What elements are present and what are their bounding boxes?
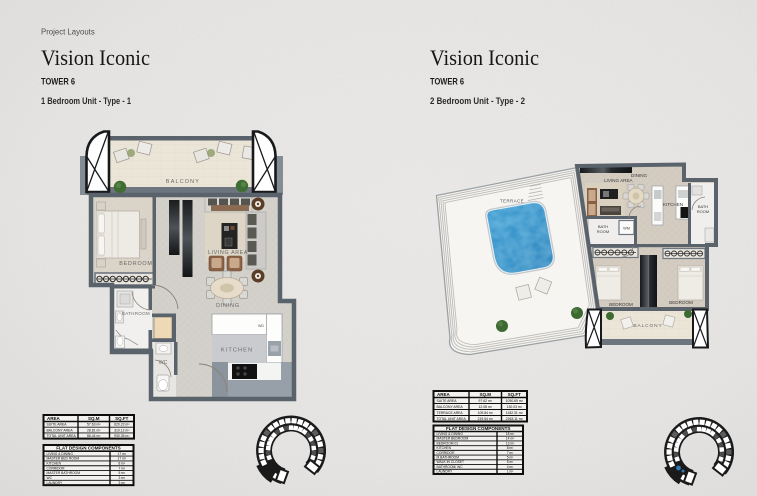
svg-text:TERRACE AREA: TERRACE AREA: [437, 411, 464, 415]
svg-text:BALCONY AREA: BALCONY AREA: [437, 405, 464, 409]
svg-text:SQ.FT: SQ.FT: [115, 416, 129, 421]
svg-text:3 m²: 3 m²: [118, 481, 125, 485]
svg-text:FLAT DESIGN COMPONENTS: FLAT DESIGN COMPONENTS: [446, 426, 510, 431]
svg-text:310.12 m²: 310.12 m²: [114, 428, 130, 432]
svg-text:7 m²: 7 m²: [507, 451, 514, 455]
svg-text:SQ.M: SQ.M: [479, 392, 491, 397]
svg-text:SQ.M: SQ.M: [88, 416, 100, 421]
svg-text:MASTER BATHROOM: MASTER BATHROOM: [47, 471, 81, 475]
svg-text:LIVING & DINING: LIVING & DINING: [47, 452, 74, 456]
svg-text:SQ.FT: SQ.FT: [508, 392, 522, 397]
svg-text:WM: WM: [623, 227, 630, 231]
svg-text:1 Bedroom Unit - Type - 1: 1 Bedroom Unit - Type - 1: [41, 96, 132, 107]
svg-text:14 m²: 14 m²: [506, 437, 515, 441]
svg-text:8 m²: 8 m²: [118, 461, 125, 465]
svg-text:KITCHEN: KITCHEN: [47, 461, 62, 465]
svg-text:4 m²: 4 m²: [507, 465, 514, 469]
svg-text:DINING: DINING: [631, 173, 648, 178]
svg-text:BALCONY AREA: BALCONY AREA: [47, 428, 74, 432]
svg-text:97.62 m²: 97.62 m²: [479, 399, 493, 403]
svg-text:18 m²: 18 m²: [506, 432, 515, 436]
svg-text:28.81 m²: 28.81 m²: [87, 428, 101, 432]
svg-text:Vision Iconic: Vision Iconic: [430, 45, 539, 70]
svg-text:219.54 m²: 219.54 m²: [478, 417, 494, 421]
svg-text:DINING: DINING: [216, 303, 240, 309]
svg-text:12.08 m²: 12.08 m²: [479, 405, 493, 409]
svg-text:CORRIDOR: CORRIDOR: [47, 466, 66, 470]
svg-text:17 m²: 17 m²: [118, 457, 127, 461]
svg-text:8 m²: 8 m²: [507, 446, 514, 450]
svg-text:130.03 m²: 130.03 m²: [507, 405, 523, 409]
svg-text:5 m²: 5 m²: [118, 471, 125, 475]
svg-text:WD: WD: [258, 324, 264, 328]
svg-text:13 m²: 13 m²: [506, 441, 515, 445]
svg-text:LAUNDRY: LAUNDRY: [437, 470, 453, 474]
svg-text:BEDROOM: BEDROOM: [119, 261, 152, 267]
svg-text:Vision Iconic: Vision Iconic: [41, 45, 150, 70]
svg-text:109.84 m²: 109.84 m²: [478, 411, 494, 415]
svg-text:WALK IN CLOSET: WALK IN CLOSET: [437, 460, 465, 464]
svg-text:TOWER 6: TOWER 6: [430, 77, 464, 88]
svg-text:KITCHEN: KITCHEN: [663, 202, 683, 207]
svg-text:BALCONY: BALCONY: [166, 179, 200, 185]
svg-text:BALCONY: BALCONY: [633, 323, 662, 329]
svg-text:Project Layouts: Project Layouts: [41, 28, 95, 37]
svg-text:CORRIDOR: CORRIDOR: [437, 451, 456, 455]
svg-text:ROOM: ROOM: [597, 229, 609, 234]
svg-text:AREA: AREA: [437, 392, 451, 397]
svg-text:WC: WC: [47, 476, 53, 480]
svg-text:1182.31 m²: 1182.31 m²: [506, 411, 524, 415]
svg-text:SUITE AREA: SUITE AREA: [47, 423, 68, 427]
svg-text:620.22 m²: 620.22 m²: [114, 423, 130, 427]
svg-text:BATHROOM/ WC: BATHROOM/ WC: [437, 465, 464, 469]
svg-text:MASTER BED ROOM: MASTER BED ROOM: [47, 457, 80, 461]
svg-text:TOTAL UNIT AREA: TOTAL UNIT AREA: [437, 417, 467, 421]
svg-text:BATHROOM: BATHROOM: [122, 311, 150, 316]
svg-text:BEDROOM 01: BEDROOM 01: [437, 441, 459, 445]
svg-text:LIVING AREA: LIVING AREA: [604, 178, 634, 183]
svg-text:LIVING AREA: LIVING AREA: [208, 250, 248, 256]
svg-text:BEDROOM: BEDROOM: [669, 300, 693, 305]
svg-text:2 Bedroom Unit - Type - 2: 2 Bedroom Unit - Type - 2: [430, 96, 525, 107]
svg-text:FLAT DESIGN COMPONENTS: FLAT DESIGN COMPONENTS: [56, 446, 120, 451]
svg-text:1050.69 m²: 1050.69 m²: [506, 399, 524, 403]
svg-text:5 m²: 5 m²: [507, 460, 514, 464]
svg-text:7 m²: 7 m²: [118, 466, 125, 470]
svg-text:2363.11 m²: 2363.11 m²: [506, 417, 524, 421]
svg-text:M.BATHROOM: M.BATHROOM: [437, 456, 460, 460]
svg-text:SUITE AREA: SUITE AREA: [437, 399, 458, 403]
svg-text:TOTAL UNIT AREA: TOTAL UNIT AREA: [47, 434, 77, 438]
svg-text:AREA: AREA: [47, 416, 61, 421]
svg-text:5 m²: 5 m²: [507, 456, 514, 460]
svg-text:TOWER 6: TOWER 6: [41, 77, 75, 88]
svg-text:MASTER BEDROOM: MASTER BEDROOM: [437, 437, 469, 441]
svg-text:86.44 m²: 86.44 m²: [87, 434, 101, 438]
svg-text:KITCHEN: KITCHEN: [437, 446, 452, 450]
svg-text:LIVING & DINING: LIVING & DINING: [437, 432, 464, 436]
svg-text:1 m²: 1 m²: [507, 470, 514, 474]
svg-text:ROOM: ROOM: [697, 209, 709, 214]
svg-text:LAUNDRY: LAUNDRY: [47, 481, 63, 485]
svg-text:KITCHEN: KITCHEN: [221, 348, 253, 354]
svg-text:3 m²: 3 m²: [118, 476, 125, 480]
svg-text:57.63 m²: 57.63 m²: [87, 423, 101, 427]
svg-text:17 m²: 17 m²: [118, 452, 127, 456]
svg-text:BEDROOM: BEDROOM: [609, 302, 633, 307]
svg-text:930.35 m²: 930.35 m²: [114, 434, 130, 438]
svg-text:TERRACE: TERRACE: [500, 199, 524, 204]
